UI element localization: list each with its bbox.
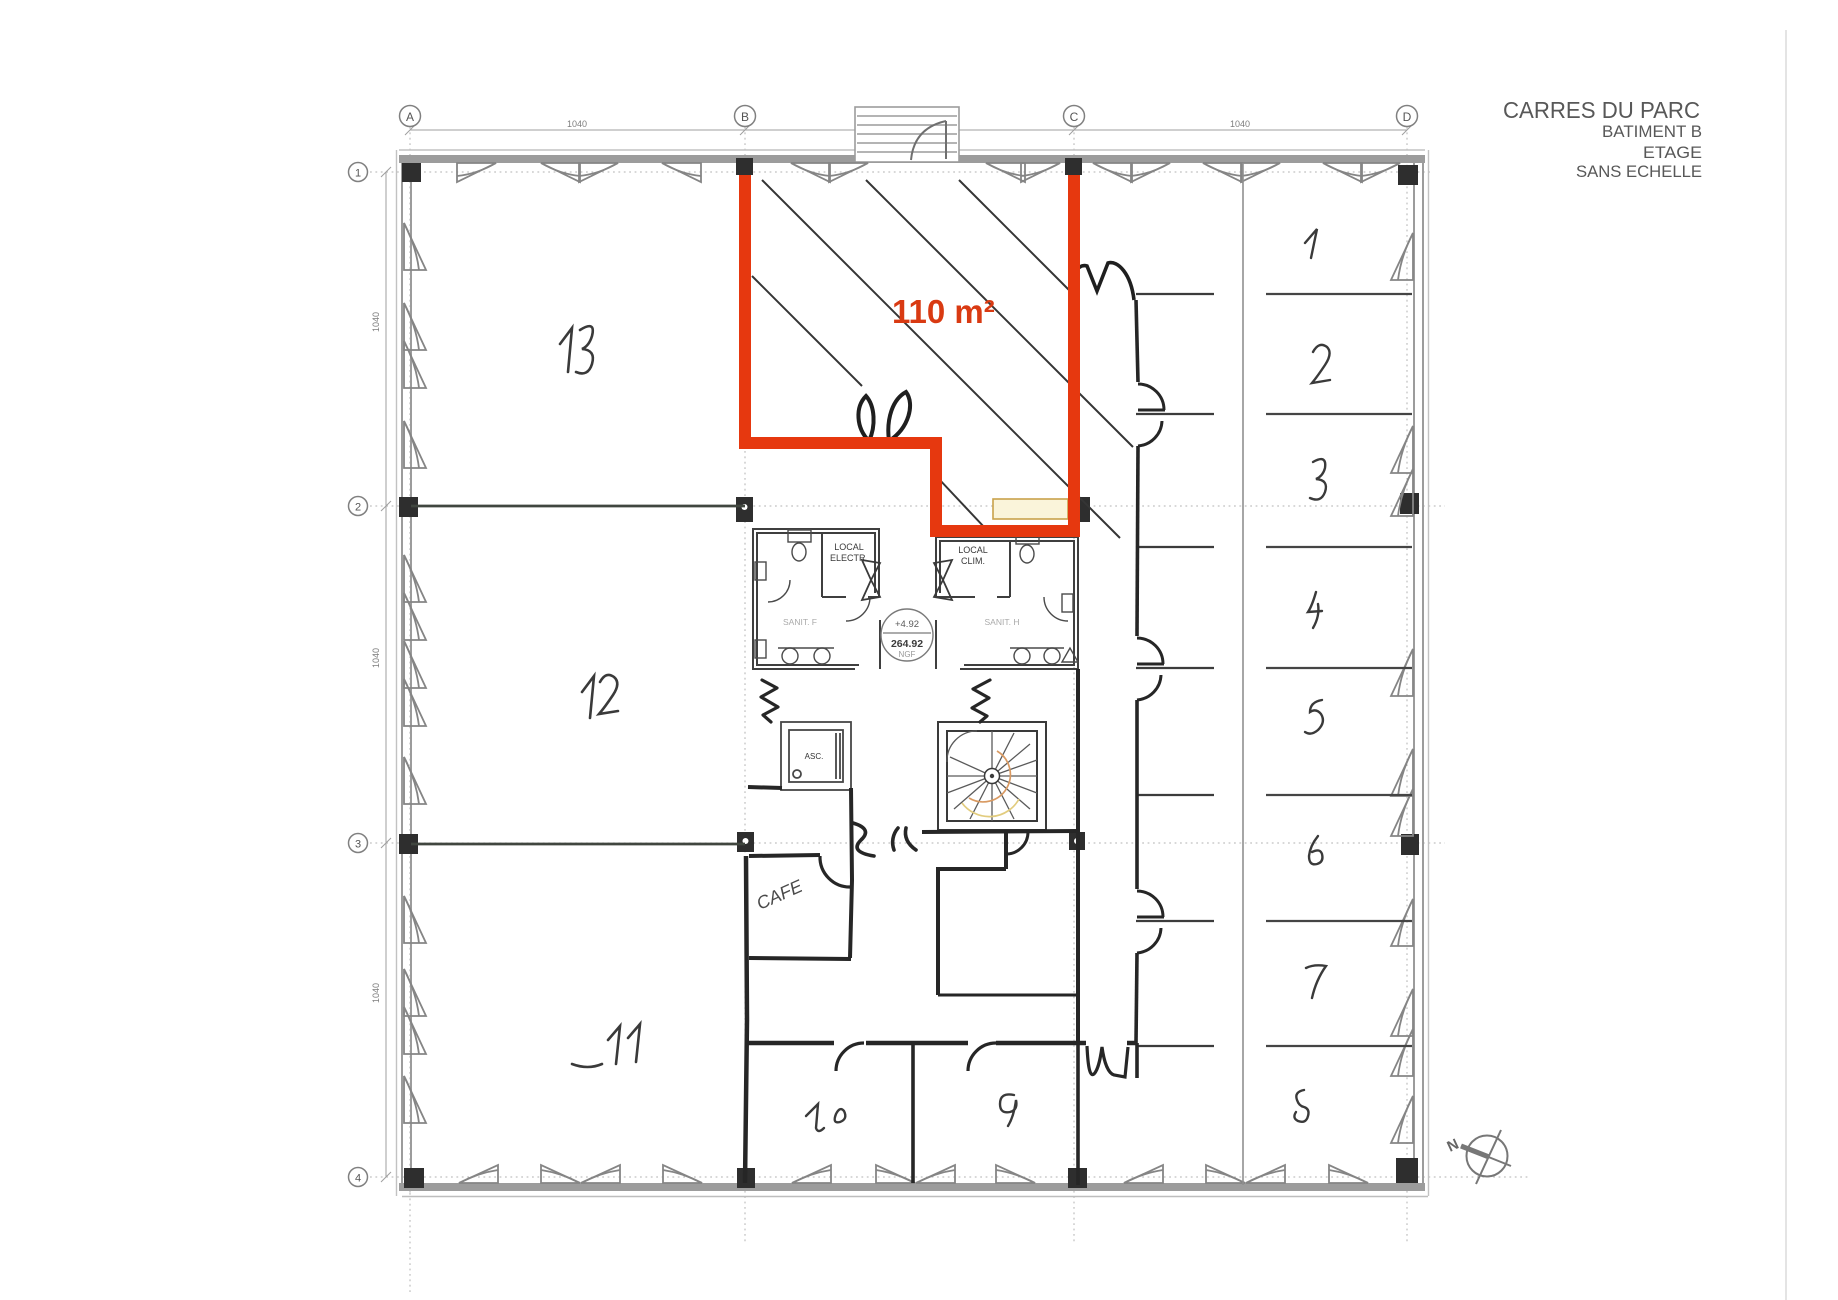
svg-text:LOCAL: LOCAL xyxy=(958,545,988,555)
svg-text:4: 4 xyxy=(355,1173,361,1185)
svg-text:B: B xyxy=(741,110,749,124)
svg-text:2: 2 xyxy=(355,502,361,514)
svg-text:1040: 1040 xyxy=(371,648,381,668)
svg-text:+4.92: +4.92 xyxy=(895,619,919,630)
svg-text:NGF: NGF xyxy=(899,650,916,659)
svg-text:SANIT. F: SANIT. F xyxy=(783,617,817,627)
svg-text:264.92: 264.92 xyxy=(891,638,923,650)
svg-text:SANIT. H: SANIT. H xyxy=(985,617,1020,627)
svg-text:1040: 1040 xyxy=(1230,119,1250,129)
svg-text:ASC.: ASC. xyxy=(805,752,824,761)
svg-text:3: 3 xyxy=(355,839,361,851)
svg-text:CLIM.: CLIM. xyxy=(961,556,985,566)
svg-text:A: A xyxy=(406,110,414,124)
svg-text:SANS ECHELLE: SANS ECHELLE xyxy=(1576,162,1702,181)
svg-text:1040: 1040 xyxy=(567,119,587,129)
svg-text:1: 1 xyxy=(355,168,361,180)
svg-text:CARRES DU PARC: CARRES DU PARC xyxy=(1503,97,1700,123)
svg-text:1040: 1040 xyxy=(371,983,381,1003)
svg-text:ETAGE: ETAGE xyxy=(1643,143,1702,162)
svg-text:D: D xyxy=(1403,110,1412,124)
svg-text:BATIMENT B: BATIMENT B xyxy=(1602,122,1702,141)
svg-text:110 m²: 110 m² xyxy=(892,293,995,330)
svg-text:C: C xyxy=(1070,110,1079,124)
svg-text:LOCAL: LOCAL xyxy=(834,542,864,552)
svg-text:1040: 1040 xyxy=(371,312,381,332)
